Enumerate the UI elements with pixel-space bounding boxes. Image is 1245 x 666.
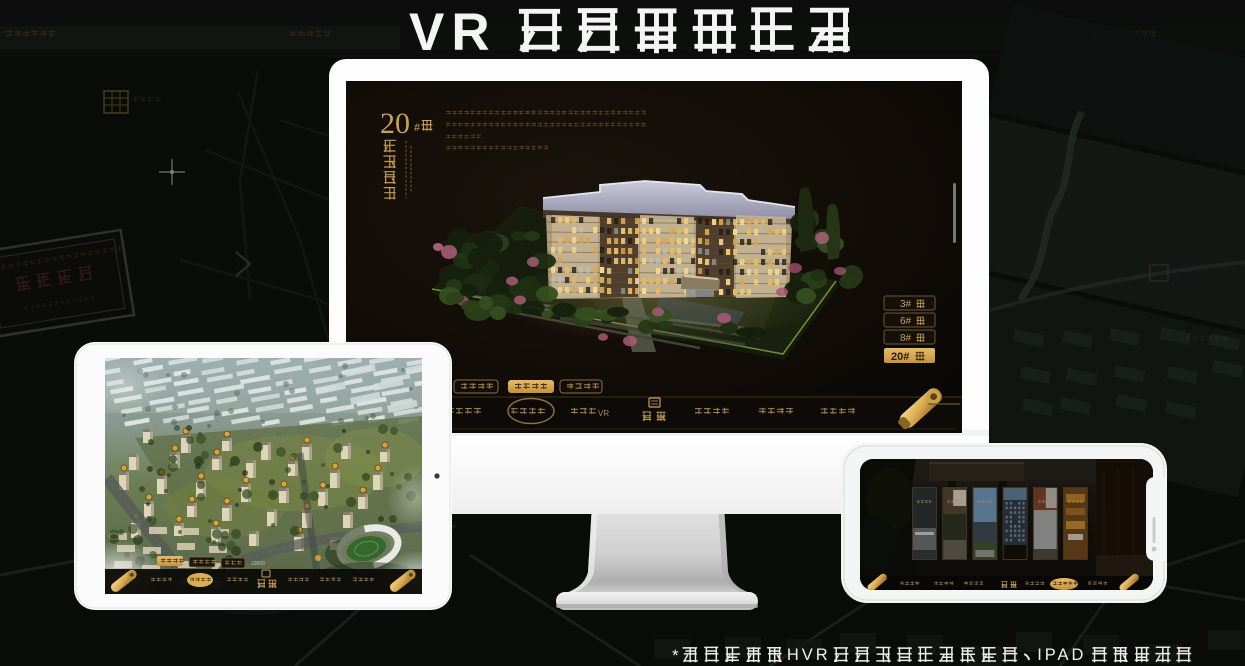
svg-text:8#: 8# [900, 333, 912, 344]
svg-text:6#: 6# [900, 316, 912, 327]
svg-text:IPAD: IPAD [1037, 646, 1086, 664]
svg-text:VR: VR [409, 3, 497, 62]
svg-text:19600: 19600 [251, 561, 265, 567]
svg-text:3#: 3# [900, 299, 912, 310]
svg-text:VR: VR [598, 409, 609, 418]
svg-text:HVR: HVR [787, 646, 831, 664]
svg-text:20: 20 [380, 107, 410, 140]
svg-text:20#: 20# [891, 351, 909, 363]
svg-text:#: # [414, 120, 420, 134]
svg-text:*: * [672, 646, 679, 665]
